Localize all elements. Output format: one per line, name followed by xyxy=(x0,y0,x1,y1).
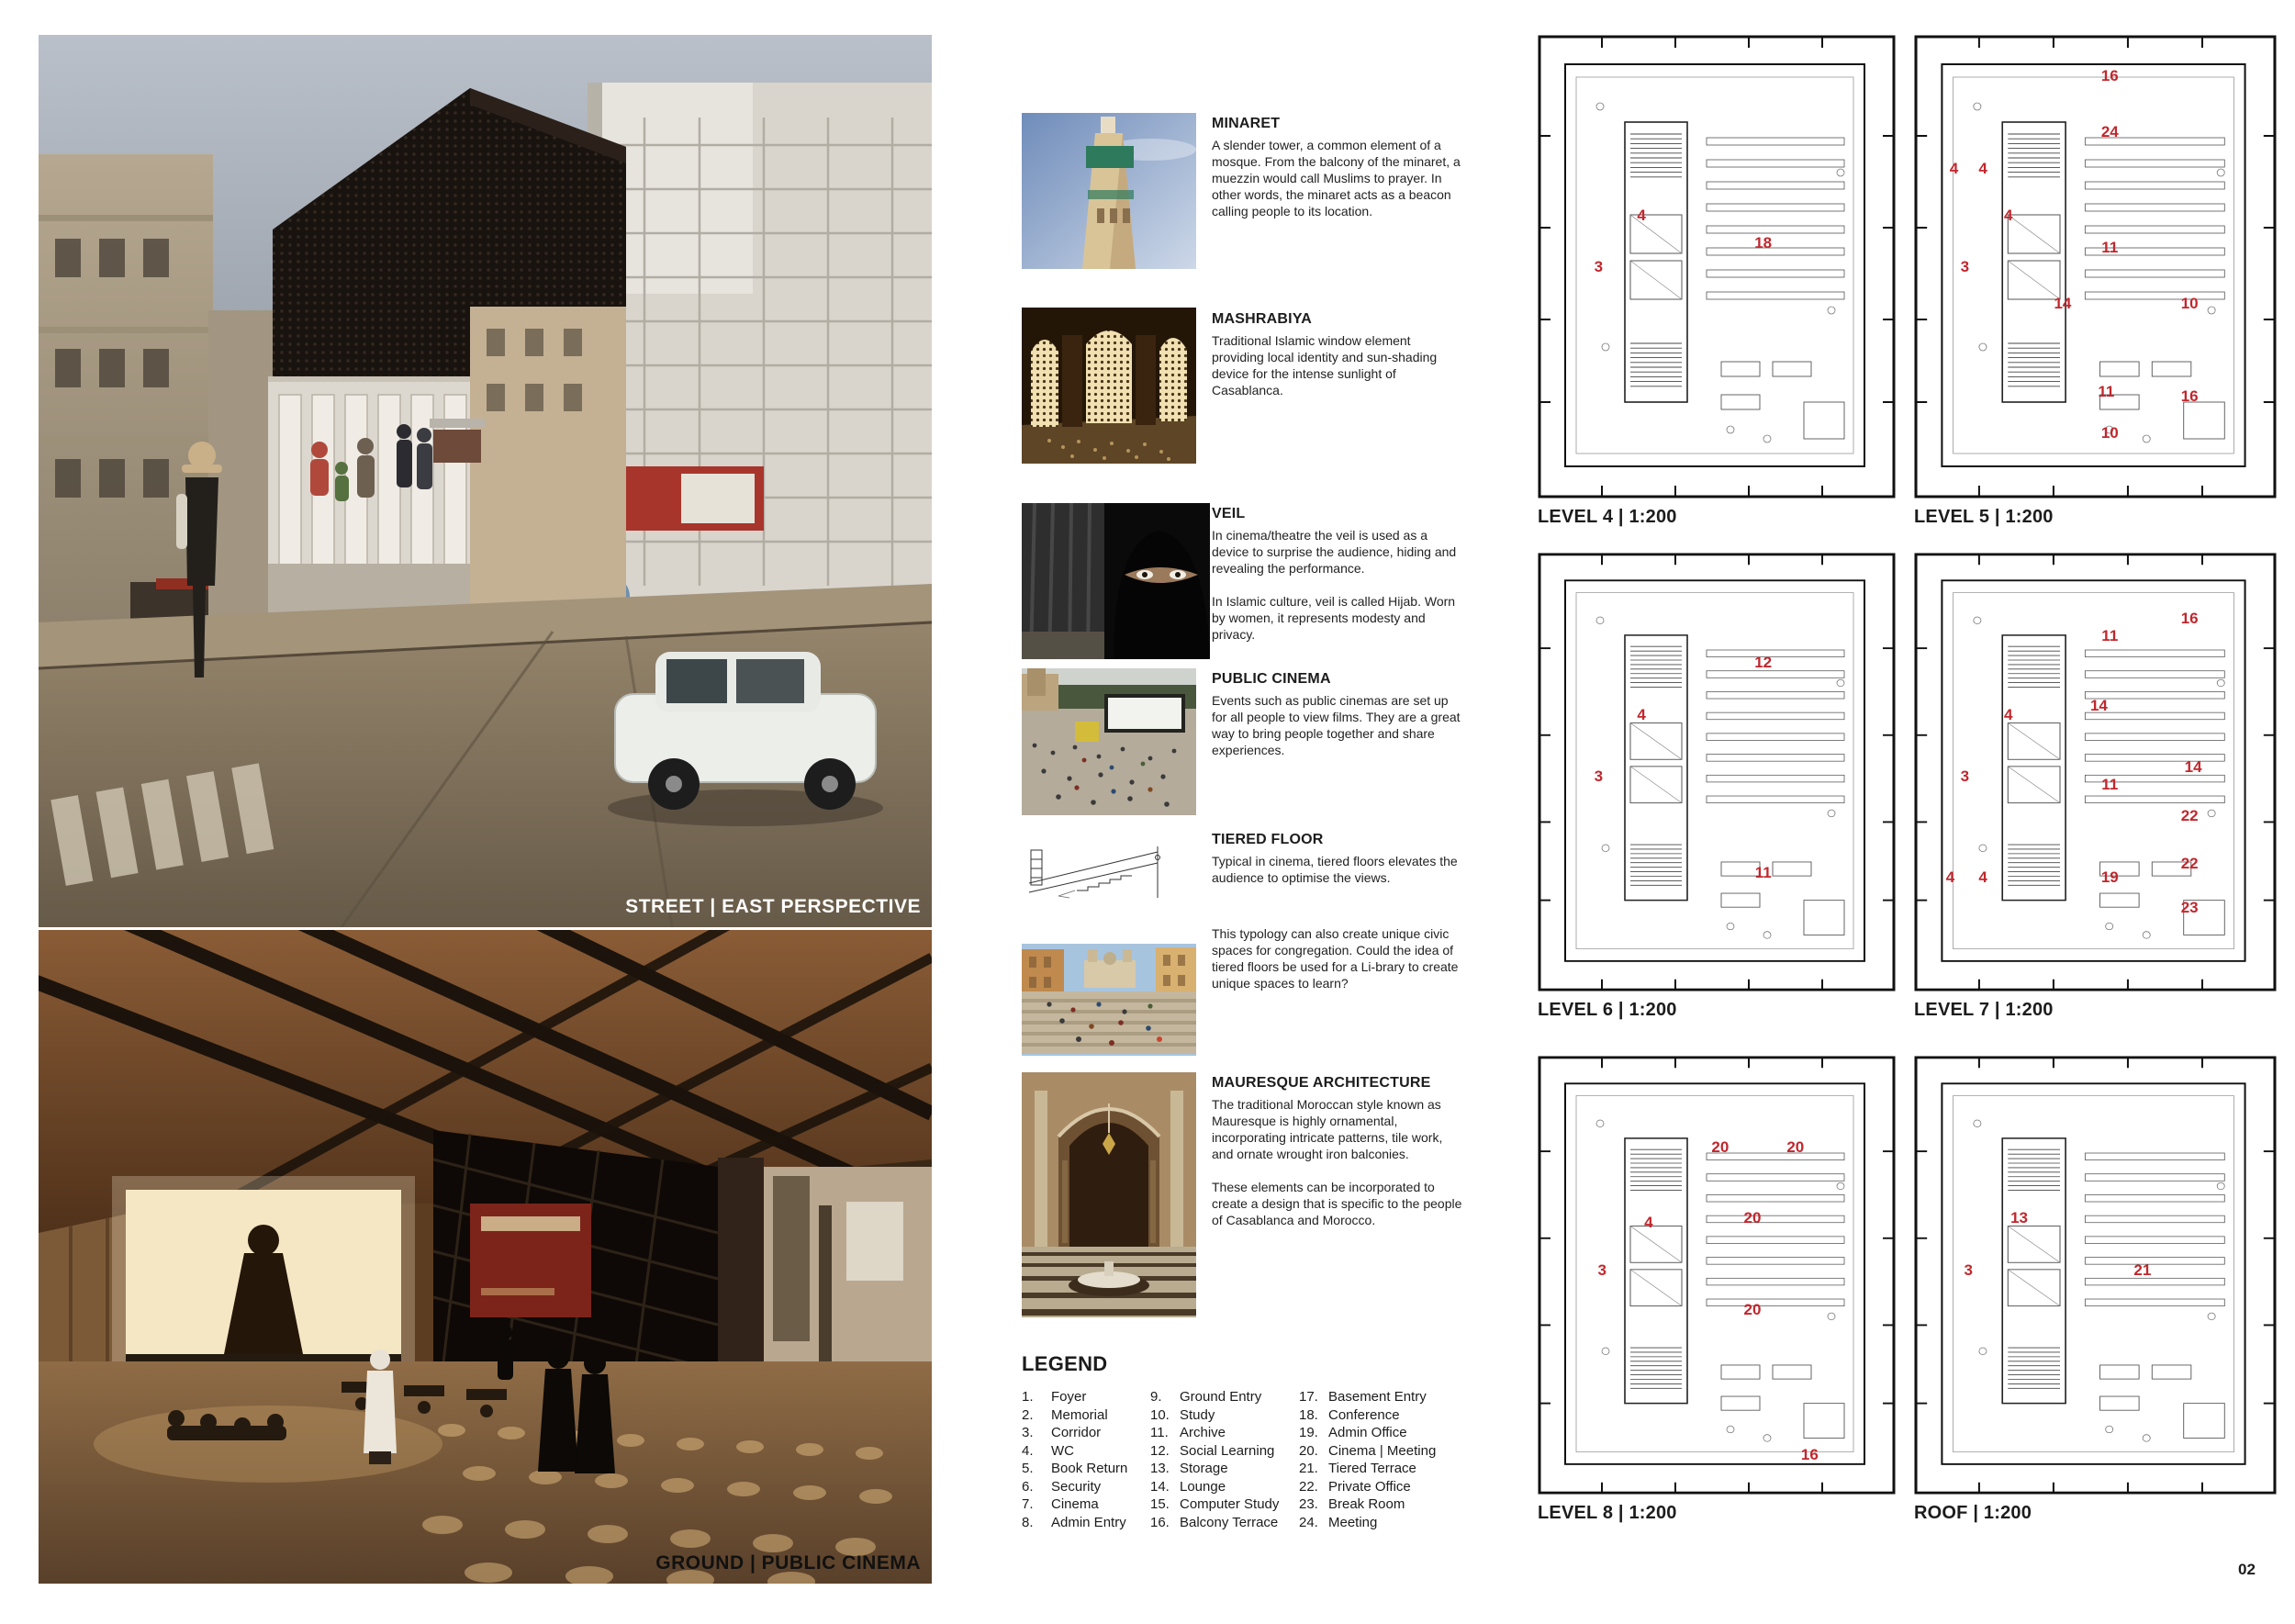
room-number-annotation: 3 xyxy=(1595,258,1603,276)
legend-column-2: 9.Ground Entry10.Study11.Archive12.Socia… xyxy=(1150,1388,1279,1531)
room-number-annotation: 12 xyxy=(1754,654,1772,672)
legend-item-label: Security xyxy=(1051,1478,1101,1496)
legend-item-number: 16. xyxy=(1150,1514,1180,1532)
plan-level-8: 202042032016 LEVEL 8 | 1:200 xyxy=(1538,1056,1896,1524)
room-number-annotation: 4 xyxy=(2004,207,2012,225)
legend-item-number: 24. xyxy=(1299,1514,1328,1532)
legend-item: 6.Security xyxy=(1022,1478,1127,1496)
legend-item-label: Memorial xyxy=(1051,1406,1108,1425)
room-number-annotation: 3 xyxy=(1961,767,1969,786)
legend-item: 5.Book Return xyxy=(1022,1460,1127,1478)
concept-mashrabiya: MASHRABIYA Traditional Islamic window el… xyxy=(1212,311,1465,415)
concept-body: Traditional Islamic window element provi… xyxy=(1212,332,1465,398)
legend-item-label: Foyer xyxy=(1051,1388,1086,1406)
legend-item: 15.Computer Study xyxy=(1150,1495,1279,1514)
concept-title: PUBLIC CINEMA xyxy=(1212,671,1465,688)
room-number-annotation: 4 xyxy=(1950,160,1958,178)
public-cinema-photo xyxy=(1022,668,1196,815)
legend-item-label: Storage xyxy=(1180,1460,1228,1478)
legend-item: 19.Admin Office xyxy=(1299,1424,1436,1442)
legend-item: 21.Tiered Terrace xyxy=(1299,1460,1436,1478)
legend-item: 14.Lounge xyxy=(1150,1478,1279,1496)
room-number-annotation: 4 xyxy=(1978,868,1987,887)
legend-item-label: Study xyxy=(1180,1406,1215,1425)
room-number-annotation: 11 xyxy=(2101,627,2118,645)
room-number-annotation: 14 xyxy=(2090,697,2108,715)
street-render-art xyxy=(39,35,932,927)
room-number-annotation: 4 xyxy=(1978,160,1987,178)
legend-item-number: 6. xyxy=(1022,1478,1051,1496)
legend-item-number: 8. xyxy=(1022,1514,1051,1532)
legend-item: 11.Archive xyxy=(1150,1424,1279,1442)
veil-photo xyxy=(1022,503,1210,659)
plan-label: LEVEL 4 | 1:200 xyxy=(1538,507,1896,528)
legend-item: 8.Admin Entry xyxy=(1022,1514,1127,1532)
room-number-annotation: 20 xyxy=(1744,1209,1762,1227)
legend-item-number: 13. xyxy=(1150,1460,1180,1478)
room-number-annotation: 22 xyxy=(2181,855,2199,873)
floor-plan-drawing: 4318 xyxy=(1538,35,1896,498)
concept-body: The traditional Moroccan style known as … xyxy=(1212,1096,1465,1162)
room-number-annotation: 11 xyxy=(2101,776,2118,794)
room-number-annotation: 16 xyxy=(2181,387,2199,406)
ground-render-art xyxy=(39,930,932,1584)
legend-item-number: 1. xyxy=(1022,1388,1051,1406)
plan-label: LEVEL 6 | 1:200 xyxy=(1538,1000,1896,1021)
room-number-annotation: 20 xyxy=(1711,1138,1729,1157)
concept-title: TIERED FLOOR xyxy=(1212,832,1465,848)
room-number-annotation: 10 xyxy=(2101,424,2119,442)
floor-plan-drawing: 124311 xyxy=(1538,553,1896,991)
legend-item-number: 3. xyxy=(1022,1424,1051,1442)
concept-body: This typology can also create unique civ… xyxy=(1212,925,1465,991)
room-number-annotation: 20 xyxy=(1744,1301,1762,1319)
legend-item-label: Computer Study xyxy=(1180,1495,1279,1514)
room-number-annotation: 24 xyxy=(2101,123,2119,141)
plan-level-7: 1611144314112222441923 LEVEL 7 | 1:200 xyxy=(1914,553,2277,1021)
legend-item: 10.Study xyxy=(1150,1406,1279,1425)
legend-item-number: 23. xyxy=(1299,1495,1328,1514)
legend-item-label: Lounge xyxy=(1180,1478,1226,1496)
legend-item: 20.Cinema | Meeting xyxy=(1299,1442,1436,1461)
legend-item: 7.Cinema xyxy=(1022,1495,1127,1514)
concept-body: These elements can be incorporated to cr… xyxy=(1212,1179,1465,1228)
legend-item-number: 21. xyxy=(1299,1460,1328,1478)
legend-item: 4.WC xyxy=(1022,1442,1127,1461)
legend-item-label: Cinema | Meeting xyxy=(1328,1442,1436,1461)
room-number-annotation: 14 xyxy=(2185,758,2202,777)
room-number-annotation: 18 xyxy=(1754,234,1772,252)
legend-item-number: 7. xyxy=(1022,1495,1051,1514)
room-number-annotation: 10 xyxy=(2181,295,2199,313)
floor-plan-drawing: 16442443111410111610 xyxy=(1914,35,2277,498)
legend-item-number: 9. xyxy=(1150,1388,1180,1406)
legend-item-number: 2. xyxy=(1022,1406,1051,1425)
legend-item-number: 11. xyxy=(1150,1424,1180,1442)
legend-item-number: 10. xyxy=(1150,1406,1180,1425)
legend-item-label: Admin Entry xyxy=(1051,1514,1126,1532)
ground-render-caption: GROUND | PUBLIC CINEMA xyxy=(655,1552,921,1574)
legend-item: 13.Storage xyxy=(1150,1460,1279,1478)
floor-plan-drawing: 1611144314112222441923 xyxy=(1914,553,2277,991)
room-number-annotation: 20 xyxy=(1786,1138,1804,1157)
concept-tiered-civic: This typology can also create unique civ… xyxy=(1212,925,1465,1008)
concept-body: Events such as public cinemas are set up… xyxy=(1212,692,1465,758)
legend-item-number: 20. xyxy=(1299,1442,1328,1461)
room-number-annotation: 14 xyxy=(2054,295,2071,313)
legend-item-number: 4. xyxy=(1022,1442,1051,1461)
mauresque-photo xyxy=(1022,1072,1196,1317)
concept-mauresque: MAURESQUE ARCHITECTURE The traditional M… xyxy=(1212,1075,1465,1245)
legend-item: 24.Meeting xyxy=(1299,1514,1436,1532)
room-number-annotation: 11 xyxy=(2101,239,2118,257)
legend-item: 23.Break Room xyxy=(1299,1495,1436,1514)
plan-label: LEVEL 7 | 1:200 xyxy=(1914,1000,2277,1021)
plan-roof: 13321 ROOF | 1:200 xyxy=(1914,1056,2277,1524)
room-number-annotation: 13 xyxy=(2010,1209,2028,1227)
concept-title: MASHRABIYA xyxy=(1212,311,1465,328)
spanish-steps-photo xyxy=(1022,944,1196,1056)
room-number-annotation: 3 xyxy=(1965,1261,1973,1280)
legend-item-number: 14. xyxy=(1150,1478,1180,1496)
legend-item-label: Balcony Terrace xyxy=(1180,1514,1278,1532)
plan-level-4: 4318 LEVEL 4 | 1:200 xyxy=(1538,35,1896,528)
ground-public-cinema-render: GROUND | PUBLIC CINEMA xyxy=(39,930,932,1584)
plan-level-6: 124311 LEVEL 6 | 1:200 xyxy=(1538,553,1896,1021)
room-number-annotation: 22 xyxy=(2181,807,2199,825)
legend-item: 22.Private Office xyxy=(1299,1478,1436,1496)
room-number-annotation: 16 xyxy=(2101,67,2119,85)
legend-item-label: Ground Entry xyxy=(1180,1388,1261,1406)
legend-item-label: Archive xyxy=(1180,1424,1226,1442)
mashrabiya-photo xyxy=(1022,308,1196,464)
legend-item: 17.Basement Entry xyxy=(1299,1388,1436,1406)
legend-item: 9.Ground Entry xyxy=(1150,1388,1279,1406)
legend-item-label: Basement Entry xyxy=(1328,1388,1427,1406)
legend-item-number: 17. xyxy=(1299,1388,1328,1406)
legend-item-number: 19. xyxy=(1299,1424,1328,1442)
floor-plan-drawing: 13321 xyxy=(1914,1056,2277,1495)
concept-body: A slender tower, a common element of a m… xyxy=(1212,137,1465,219)
page-number: 02 xyxy=(2238,1561,2256,1579)
legend-item: 1.Foyer xyxy=(1022,1388,1127,1406)
street-render-caption: STREET | EAST PERSPECTIVE xyxy=(625,896,921,918)
concept-minaret: MINARET A slender tower, a common elemen… xyxy=(1212,116,1465,236)
legend-item-label: Conference xyxy=(1328,1406,1400,1425)
legend-item-number: 15. xyxy=(1150,1495,1180,1514)
room-number-annotation: 3 xyxy=(1961,258,1969,276)
room-number-annotation: 11 xyxy=(1755,864,1772,882)
room-number-annotation: 4 xyxy=(1946,868,1954,887)
concept-body: In Islamic culture, veil is called Hijab… xyxy=(1212,593,1465,643)
legend-column-1: 1.Foyer2.Memorial3.Corridor4.WC5.Book Re… xyxy=(1022,1388,1127,1531)
legend-item-label: Book Return xyxy=(1051,1460,1127,1478)
room-number-annotation: 4 xyxy=(1637,207,1645,225)
room-number-annotation: 23 xyxy=(2181,899,2199,917)
legend-item-label: Social Learning xyxy=(1180,1442,1274,1461)
legend-item-label: Admin Office xyxy=(1328,1424,1407,1442)
minaret-photo xyxy=(1022,113,1196,269)
legend-item-label: Break Room xyxy=(1328,1495,1405,1514)
street-east-perspective-render: STREET | EAST PERSPECTIVE xyxy=(39,35,932,927)
concept-tiered-floor: TIERED FLOOR Typical in cinema, tiered f… xyxy=(1212,832,1465,902)
room-number-annotation: 21 xyxy=(2133,1261,2151,1280)
legend-item-number: 12. xyxy=(1150,1442,1180,1461)
concept-body: Typical in cinema, tiered floors elevate… xyxy=(1212,853,1465,886)
concept-title: MINARET xyxy=(1212,116,1465,132)
concept-veil: VEIL In cinema/theatre the veil is used … xyxy=(1212,506,1465,659)
room-number-annotation: 16 xyxy=(1801,1446,1819,1464)
room-number-annotation: 11 xyxy=(2098,383,2114,401)
room-number-annotation: 16 xyxy=(2181,610,2199,628)
room-number-annotation: 19 xyxy=(2101,868,2119,887)
legend-item: 12.Social Learning xyxy=(1150,1442,1279,1461)
legend-item-number: 18. xyxy=(1299,1406,1328,1425)
concept-public-cinema: PUBLIC CINEMA Events such as public cine… xyxy=(1212,671,1465,775)
room-number-annotation: 3 xyxy=(1597,1261,1606,1280)
tiered-floor-diagram xyxy=(1022,843,1196,902)
legend-item-label: Private Office xyxy=(1328,1478,1411,1496)
legend-item-label: Cinema xyxy=(1051,1495,1099,1514)
legend-item-number: 5. xyxy=(1022,1460,1051,1478)
legend-item: 16.Balcony Terrace xyxy=(1150,1514,1279,1532)
legend-title: LEGEND xyxy=(1022,1352,1107,1376)
plan-label: LEVEL 5 | 1:200 xyxy=(1914,507,2277,528)
legend-item-label: Meeting xyxy=(1328,1514,1377,1532)
presentation-board: STREET | EAST PERSPECTIVE xyxy=(0,0,2295,1624)
legend-item-label: Corridor xyxy=(1051,1424,1101,1442)
legend-item-label: WC xyxy=(1051,1442,1074,1461)
concept-title: MAURESQUE ARCHITECTURE xyxy=(1212,1075,1465,1092)
concept-body: In cinema/theatre the veil is used as a … xyxy=(1212,527,1465,577)
room-number-annotation: 4 xyxy=(1637,706,1645,724)
room-number-annotation: 4 xyxy=(1644,1214,1652,1232)
legend-item-label: Tiered Terrace xyxy=(1328,1460,1416,1478)
room-number-annotation: 4 xyxy=(2004,706,2012,724)
plan-label: ROOF | 1:200 xyxy=(1914,1503,2277,1524)
legend-item-number: 22. xyxy=(1299,1478,1328,1496)
concept-title: VEIL xyxy=(1212,506,1465,522)
legend-column-3: 17.Basement Entry18.Conference19.Admin O… xyxy=(1299,1388,1436,1531)
legend-item: 2.Memorial xyxy=(1022,1406,1127,1425)
plan-label: LEVEL 8 | 1:200 xyxy=(1538,1503,1896,1524)
room-number-annotation: 3 xyxy=(1595,767,1603,786)
floor-plan-drawing: 202042032016 xyxy=(1538,1056,1896,1495)
legend-item: 18.Conference xyxy=(1299,1406,1436,1425)
legend-item: 3.Corridor xyxy=(1022,1424,1127,1442)
plan-level-5: 16442443111410111610 LEVEL 5 | 1:200 xyxy=(1914,35,2277,528)
